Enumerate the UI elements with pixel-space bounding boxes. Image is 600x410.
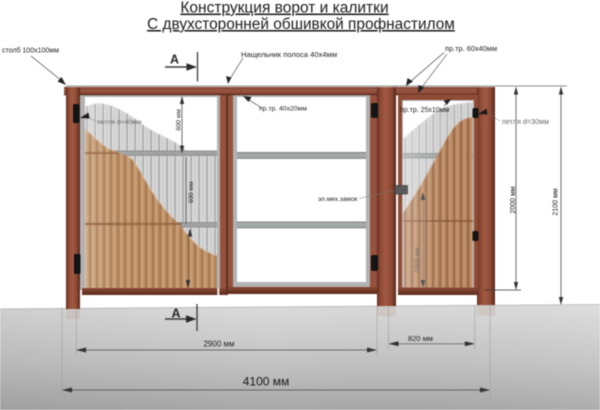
svg-text:1000 мм: 1000 мм: [414, 247, 421, 273]
svg-text:2000 мм: 2000 мм: [510, 186, 517, 213]
svg-text:600 мм: 600 мм: [188, 181, 195, 203]
svg-text:С двухсторонней обшивкой проф: С двухсторонней обшивкой профнастилом: [147, 16, 455, 33]
svg-text:пр.тр. 40х20мм: пр.тр. 40х20мм: [259, 106, 307, 113]
svg-text:петля d=30мм: петля d=30мм: [502, 117, 549, 126]
svg-text:2100 мм: 2100 мм: [553, 188, 560, 215]
svg-text:2900 мм: 2900 мм: [203, 340, 234, 349]
svg-text:пр.тр. 25х10мм: пр.тр. 25х10мм: [400, 107, 450, 114]
svg-text:пр.тр. 60х40мм: пр.тр. 60х40мм: [445, 44, 497, 53]
svg-text:столб 100х100мм: столб 100х100мм: [2, 47, 59, 55]
svg-text:эл.мех.замок: эл.мех.замок: [318, 196, 357, 203]
svg-text:600 мм: 600 мм: [176, 109, 183, 131]
svg-text:4100 мм: 4100 мм: [243, 375, 290, 389]
svg-text:А: А: [170, 53, 179, 67]
svg-text:А: А: [171, 307, 180, 321]
svg-text:петля d=40мм: петля d=40мм: [97, 119, 142, 126]
svg-text:820 мм: 820 мм: [408, 334, 433, 343]
svg-text:Конструкция ворот и калитки: Конструкция ворот и калитки: [180, 0, 388, 17]
svg-text:Нащельник полоса 40х4мм: Нащельник полоса 40х4мм: [241, 50, 337, 59]
